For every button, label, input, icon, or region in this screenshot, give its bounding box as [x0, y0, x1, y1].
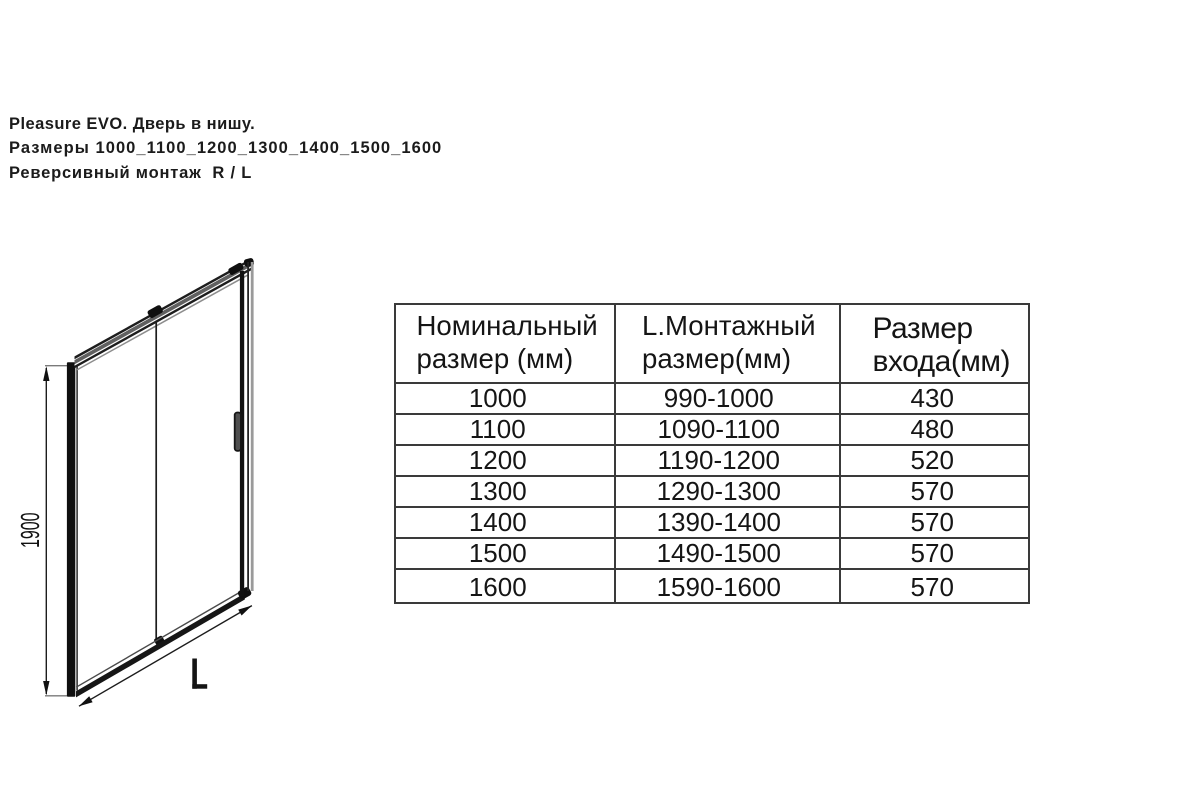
svg-text:1900: 1900 — [17, 513, 45, 549]
